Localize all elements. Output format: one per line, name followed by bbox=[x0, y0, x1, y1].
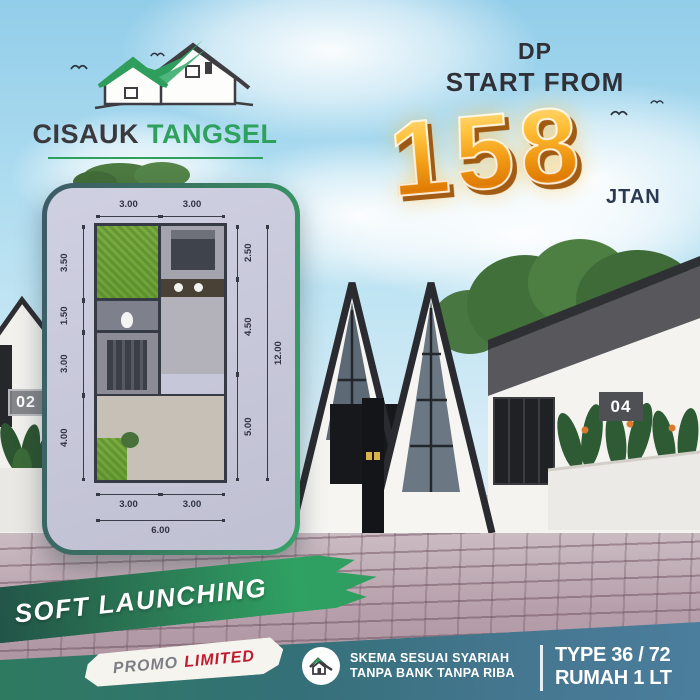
dim-right-total: 12.00 bbox=[273, 226, 284, 480]
footer-divider bbox=[540, 645, 543, 691]
dim-left-3: 3.00 bbox=[59, 332, 70, 395]
unit-number-plate-02: 02 bbox=[8, 389, 44, 416]
dim-top-1: 3.00 bbox=[97, 199, 160, 210]
brand-logo: CISAUK TANGSEL bbox=[18, 34, 292, 159]
dim-left-1: 3.50 bbox=[59, 226, 70, 300]
floorplan-card: 3.00 3.00 3.50 1.50 3.00 4.00 2.50 4.50 … bbox=[42, 183, 300, 555]
dp-label: DP bbox=[385, 38, 685, 65]
dim-top-2: 3.00 bbox=[160, 199, 224, 210]
price-amount: 158 bbox=[347, 80, 627, 224]
dim-bottom-2: 3.00 bbox=[160, 499, 224, 510]
brand-name-primary: CISAUK bbox=[32, 119, 139, 149]
type-line2: RUMAH 1 LT bbox=[555, 667, 697, 690]
poster: 02 04 CISAUK TANGSEL DP START FROM 158 J… bbox=[0, 0, 700, 700]
type-line1: TYPE 36 / 72 bbox=[555, 644, 697, 667]
brand-name-secondary: TANGSEL bbox=[147, 119, 278, 149]
house-logo-icon bbox=[35, 34, 275, 112]
syariah-line2: TANPA BANK TANPA RIBA bbox=[350, 666, 515, 682]
dim-right-2: 4.50 bbox=[243, 279, 254, 374]
promo-limited-label: LIMITED bbox=[183, 648, 255, 672]
syariah-info: SKEMA SESUAI SYARIAH TANPA BANK TANPA RI… bbox=[302, 647, 515, 685]
dim-bottom-total: 6.00 bbox=[97, 525, 224, 536]
dim-left-4: 4.00 bbox=[59, 395, 70, 480]
brand-underline bbox=[48, 157, 263, 159]
dim-right-1: 2.50 bbox=[243, 226, 254, 279]
brand-name: CISAUK TANGSEL bbox=[18, 119, 292, 150]
syariah-house-icon bbox=[302, 647, 340, 685]
dim-left-2: 1.50 bbox=[59, 300, 70, 332]
unit-number-plate-04: 04 bbox=[599, 392, 643, 421]
dim-right-3: 5.00 bbox=[243, 374, 254, 480]
gate-pillar bbox=[362, 398, 384, 534]
syariah-line1: SKEMA SESUAI SYARIAH bbox=[350, 651, 515, 667]
price-unit: JTAN bbox=[606, 186, 661, 209]
house-type-info: TYPE 36 / 72 RUMAH 1 LT bbox=[555, 644, 697, 690]
dim-bottom-1: 3.00 bbox=[97, 499, 160, 510]
promo-label: PROMO bbox=[112, 655, 179, 679]
